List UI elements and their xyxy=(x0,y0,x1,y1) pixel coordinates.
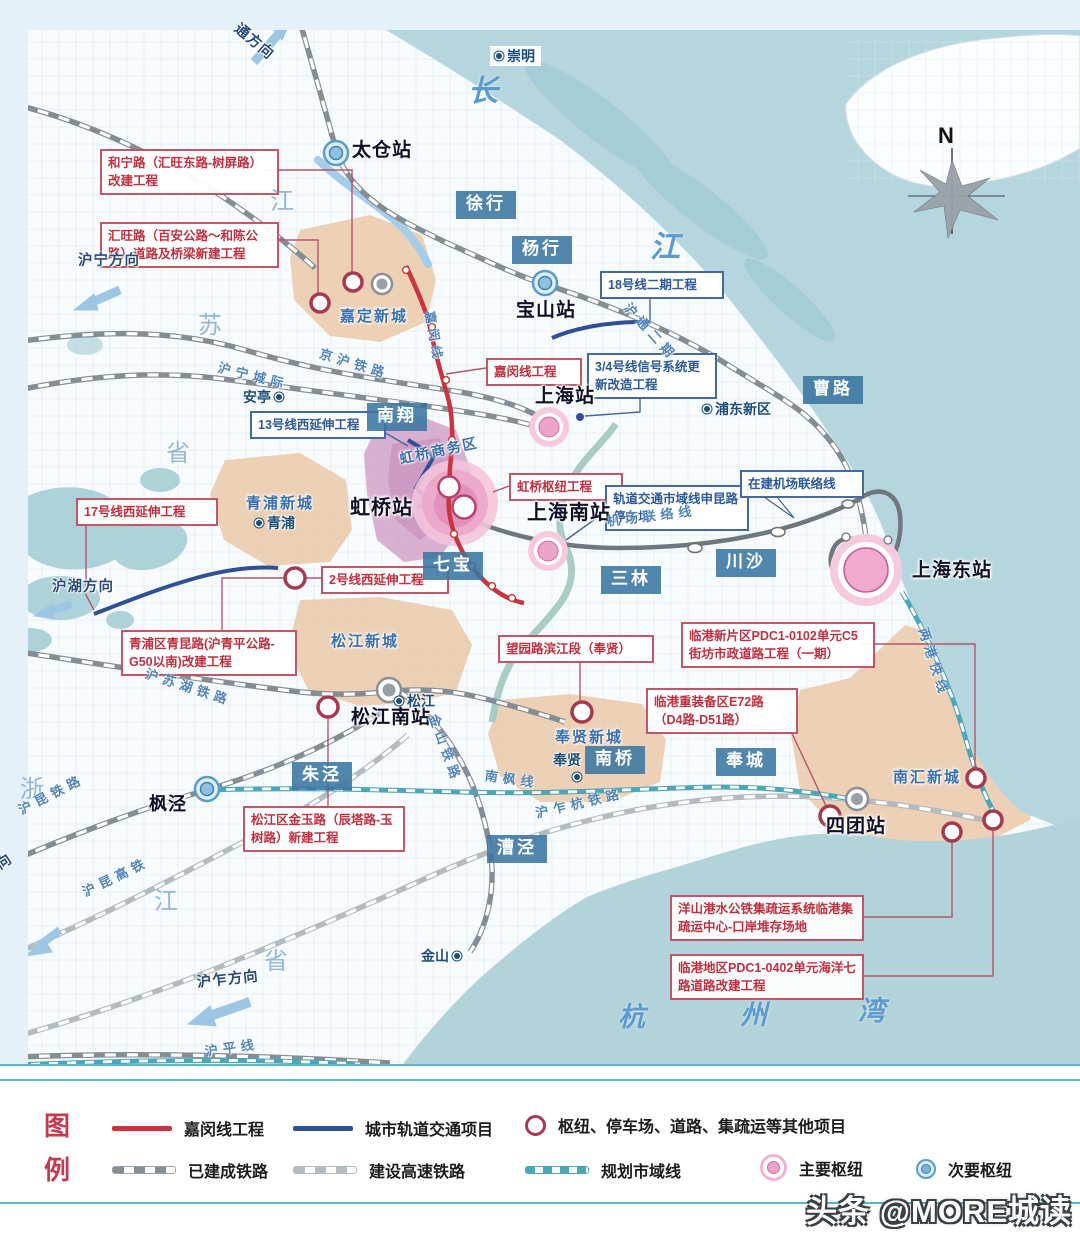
callout-jiamin-line: 嘉闵线工程 xyxy=(486,358,582,386)
legend-label: 规划市域线 xyxy=(601,1158,681,1182)
dir-hukun-label: 沪昆方向 xyxy=(0,851,15,898)
town-nanxiang: 南翔 xyxy=(367,403,427,431)
town-yanghang: 杨行 xyxy=(512,236,572,264)
poi-dot-icon xyxy=(256,520,262,526)
water-hangzhouwan-hang: 杭 xyxy=(618,1000,645,1035)
town-caolu: 曹路 xyxy=(803,376,863,404)
town-nanqiao-label: 南桥 xyxy=(595,749,635,768)
dir-huzha: 沪乍方向 xyxy=(196,968,260,993)
other-project-symbol xyxy=(525,1115,546,1136)
compass-n: N xyxy=(938,122,954,151)
town-zhujing-label: 朱泾 xyxy=(302,765,342,784)
dir-huhu: 沪湖方向 xyxy=(52,578,114,597)
rail-label-jinshan: 金山铁路 xyxy=(424,712,465,785)
watermark: 头条 @MORE城读 xyxy=(806,1186,1072,1231)
legend-label: 枢纽、停车场、道路、集疏运等其他项目 xyxy=(558,1113,846,1137)
town-xuhang-label: 徐行 xyxy=(466,194,506,213)
water-changjiang-jiang-label: 江 xyxy=(650,231,680,264)
prov-zhejiang-sheng-label: 省 xyxy=(264,948,290,975)
legend-item-major-hub: 主要枢纽 xyxy=(760,1154,863,1181)
poi-dot-icon xyxy=(396,698,402,704)
poi-dot-icon xyxy=(574,774,580,780)
callout-qingkun-road-label: 青浦区青昆路(沪青平公路-G50以南)改建工程 xyxy=(129,637,275,669)
callout-line13-west-label: 13号线西延伸工程 xyxy=(258,418,359,432)
callout-line17-west-label: 17号线西延伸工程 xyxy=(84,505,185,519)
town-chuansha-label: 川沙 xyxy=(726,552,766,571)
rail-label-hukun-hsr-label: 沪昆高铁 xyxy=(80,854,151,899)
poi-qingpu-label: 青浦 xyxy=(267,514,295,532)
legend-heading: 图 例 xyxy=(40,1104,74,1192)
rail-label-jinghu-label: 京沪铁路 xyxy=(318,346,391,381)
area-hongqiao-cbd: 虹桥商务区 xyxy=(398,433,480,467)
town-fengcheng-label: 奉城 xyxy=(726,751,766,770)
callout-pdc1-0102: 临港新片区PDC1-0102单元C5街坊市政道路工程（一期） xyxy=(681,622,875,668)
legend-item-minor-hub: 次要枢纽 xyxy=(916,1157,1012,1181)
town-caojing-label: 漕泾 xyxy=(497,838,537,857)
rail-label-huping-label: 沪平线 xyxy=(204,1036,260,1058)
water-hangzhouwan-wan-label: 湾 xyxy=(858,996,885,1026)
prov-jiangsu-sheng: 省 xyxy=(166,438,192,469)
hsr-symbol xyxy=(293,1166,357,1174)
legend-item-hsr: 建设高速铁路 xyxy=(293,1158,465,1182)
rail-label-huzhahang: 沪乍杭铁路 xyxy=(534,786,626,823)
legend-label: 已建成铁路 xyxy=(188,1158,268,1182)
poi-chongming-label: 崇明 xyxy=(507,47,535,65)
station-situan-label: 四团站 xyxy=(826,816,886,837)
station-shanghai-east-label: 上海东站 xyxy=(912,560,992,581)
legend-label: 主要枢纽 xyxy=(799,1156,863,1180)
station-taicang: 太仓站 xyxy=(352,139,412,164)
area-nanhui-newtown-label: 南汇新城 xyxy=(893,769,961,786)
callout-wangyuan-road-label: 望园路滨江段（奉贤） xyxy=(506,642,631,656)
callout-line17-west: 17号线西延伸工程 xyxy=(76,498,218,526)
rail-label-nanfeng-label: 南枫线 xyxy=(484,768,540,790)
water-hangzhouwan-zhou-label: 州 xyxy=(740,1000,767,1030)
town-chuansha: 川沙 xyxy=(716,549,776,577)
rail-label-jiamin-label: 嘉闵线 xyxy=(422,310,445,364)
area-nanhui-newtown: 南汇新城 xyxy=(893,768,961,788)
callout-jinyu-road: 松江区金玉路（辰塔路-玉树路）新建工程 xyxy=(243,806,405,852)
callout-line2-west-label: 2号线西延伸工程 xyxy=(329,573,423,587)
prov-jiangsu-su: 苏 xyxy=(198,310,224,341)
town-zhujing: 朱泾 xyxy=(292,762,352,790)
rail-label-jinghu: 京沪铁路 xyxy=(317,346,391,383)
poi-jinshan-label: 金山 xyxy=(421,947,449,965)
station-shanghai-south-label: 上海南站 xyxy=(527,502,611,524)
poi-chongming: 崇明 xyxy=(490,46,541,66)
legend-label: 次要枢纽 xyxy=(948,1157,1012,1181)
poi-pudong-new-area: 浦东新区 xyxy=(704,400,771,418)
station-baoshan-label: 宝山站 xyxy=(516,300,576,321)
callout-hongqiao-hub-label: 虹桥枢纽工程 xyxy=(517,480,592,494)
station-situan: 四团站 xyxy=(826,815,886,840)
station-taicang-label: 太仓站 xyxy=(352,140,412,161)
dir-nantong-label: 通方向 xyxy=(231,21,277,63)
water-hangzhouwan-hang-label: 杭 xyxy=(618,1002,645,1032)
water-changjiang-chang: 长 xyxy=(468,72,498,111)
map-overlays: 和宁路（汇旺东路-树屏路）改建工程汇旺路（百安公路～和陈公路）道路及桥梁新建工程… xyxy=(0,0,1080,1246)
prov-jiangsu-sheng-label: 省 xyxy=(166,440,192,467)
prov-jiangsu-jiang-label: 江 xyxy=(270,188,296,215)
callout-line18-phase2: 18号线二期工程 xyxy=(600,271,724,299)
rail-label-huping: 沪平线 xyxy=(204,1036,260,1060)
dir-nantong: 通方向 xyxy=(230,20,278,64)
station-shanghai: 上海站 xyxy=(535,385,595,410)
rail-label-lianggang-label: 两港快线 xyxy=(916,626,953,699)
callout-airport-link: 在建机场联络线 xyxy=(740,470,864,498)
station-shanghai-label: 上海站 xyxy=(535,386,595,407)
callout-line18-phase2-label: 18号线二期工程 xyxy=(608,278,697,292)
compass-n-label: N xyxy=(938,123,954,148)
rail-label-huzhahang-label: 沪乍杭铁路 xyxy=(534,786,625,821)
jiamin-line-symbol xyxy=(112,1126,172,1131)
rail-label-jiamin: 嘉闵线 xyxy=(421,310,446,365)
town-nanqiao: 南桥 xyxy=(585,746,645,774)
poi-anting-label: 安亭 xyxy=(243,388,271,406)
legend-heading-char1: 图 xyxy=(40,1104,74,1148)
callout-line34-signal: 3/4号线信号系统更新改造工程 xyxy=(587,353,717,399)
dir-huhu-label: 沪湖方向 xyxy=(52,579,114,595)
poi-fengxian-dot xyxy=(574,774,580,780)
legend-item-built-railway: 已建成铁路 xyxy=(112,1158,268,1182)
town-nanxiang-label: 南翔 xyxy=(377,406,417,425)
poi-pudong-new-area-label: 浦东新区 xyxy=(715,400,771,418)
callout-hening-road: 和宁路（汇旺东路-树屏路）改建工程 xyxy=(100,149,279,195)
poi-fengxian-label: 奉贤 xyxy=(553,751,581,769)
water-hangzhouwan-wan: 湾 xyxy=(858,994,885,1029)
station-shanghai-south: 上海南站 xyxy=(527,500,611,526)
poi-dot-icon xyxy=(276,394,282,400)
legend-item-planned-line: 规划市域线 xyxy=(525,1158,681,1182)
dir-hukun: 沪昆方向 xyxy=(0,850,16,900)
poi-dot-icon xyxy=(454,953,460,959)
station-fengjing-label: 枫泾 xyxy=(149,794,187,814)
built-railway-symbol xyxy=(112,1166,176,1174)
water-hangzhouwan-zhou: 州 xyxy=(740,998,767,1033)
station-hongqiao-label: 虹桥站 xyxy=(350,497,413,519)
town-qibao-label: 七宝 xyxy=(433,555,473,574)
area-qingpu-newtown-label: 青浦新城 xyxy=(246,495,314,512)
minor-hub-symbol xyxy=(916,1159,936,1179)
town-yanghang-label: 杨行 xyxy=(522,239,562,258)
rail-label-hukun-hsr: 沪昆高铁 xyxy=(80,854,152,901)
area-songjiang-newtown: 松江新城 xyxy=(331,632,399,652)
area-jiading-newtown-label: 嘉定新城 xyxy=(340,308,408,325)
town-caojing: 漕泾 xyxy=(487,835,547,863)
callout-yangshan: 洋山港水公铁集疏运系统临港集疏运中心-口岸堆存场地 xyxy=(670,895,864,941)
station-fengjing: 枫泾 xyxy=(149,793,187,816)
town-caolu-label: 曹路 xyxy=(813,379,853,398)
poi-songjiang-label: 松江 xyxy=(407,692,435,710)
callout-hening-road-label: 和宁路（汇旺东路-树屏路）改建工程 xyxy=(108,156,262,188)
prov-jiangsu-su-label: 苏 xyxy=(198,312,224,339)
page: 和宁路（汇旺东路-树屏路）改建工程汇旺路（百安公路～和陈公路）道路及桥梁新建工程… xyxy=(0,0,1080,1246)
separator-line-2 xyxy=(0,1079,1080,1081)
town-fengcheng: 奉城 xyxy=(716,748,776,776)
station-shanghai-east: 上海东站 xyxy=(912,559,992,584)
area-songjiang-newtown-label: 松江新城 xyxy=(331,633,399,650)
town-sanlin: 三林 xyxy=(601,566,661,594)
legend-label: 嘉闵线工程 xyxy=(184,1116,264,1140)
callout-airport-link-label: 在建机场联络线 xyxy=(748,477,836,491)
callout-line13-west: 13号线西延伸工程 xyxy=(250,411,386,439)
legend-label: 城市轨道交通项目 xyxy=(365,1116,493,1140)
dir-huzha-label: 沪乍方向 xyxy=(196,969,259,991)
callout-e72-road: 临港重装备区E72路（D4路-D51路） xyxy=(646,688,798,734)
rail-label-jinshan-label: 金山铁路 xyxy=(426,712,465,785)
prov-zhejiang-jiang: 江 xyxy=(154,886,180,917)
area-fengxian-newtown-label: 奉贤新城 xyxy=(555,729,623,746)
planned-line-symbol xyxy=(525,1166,589,1174)
rail-label-lianggang: 两港快线 xyxy=(914,626,952,700)
poi-dot-icon xyxy=(496,53,502,59)
callout-pdc1-0402-label: 临港地区PDC1-0402单元海洋七路道路改建工程 xyxy=(678,961,856,993)
poi-dot-icon xyxy=(704,406,710,412)
poi-qingpu: 青浦 xyxy=(256,514,295,532)
legend-item-jiamin-line: 嘉闵线工程 xyxy=(112,1116,264,1140)
callout-e72-road-label: 临港重装备区E72路（D4路-D51路） xyxy=(654,695,764,727)
prov-jiangsu-jiang: 江 xyxy=(270,186,296,217)
callout-line34-signal-label: 3/4号线信号系统更新改造工程 xyxy=(595,360,700,392)
urban-rail-symbol xyxy=(293,1126,353,1131)
callout-pdc1-0102-label: 临港新片区PDC1-0102单元C5街坊市政道路工程（一期） xyxy=(689,629,858,661)
legend-heading-char2: 例 xyxy=(40,1148,74,1192)
water-changjiang-chang-label: 长 xyxy=(468,75,498,108)
town-sanlin-label: 三林 xyxy=(611,569,651,588)
legend-item-other-projects: 枢纽、停车场、道路、集疏运等其他项目 xyxy=(525,1113,846,1137)
prov-zhejiang-sheng: 省 xyxy=(264,946,290,977)
dir-huning: 沪宁方向 xyxy=(78,252,140,271)
callout-pdc1-0402: 临港地区PDC1-0402单元海洋七路道路改建工程 xyxy=(670,954,864,1000)
dir-huning-label: 沪宁方向 xyxy=(78,253,140,269)
area-jiading-newtown: 嘉定新城 xyxy=(340,307,408,327)
callout-yangshan-label: 洋山港水公铁集疏运系统临港集疏运中心-口岸堆存场地 xyxy=(678,902,853,934)
poi-jinshan: 金山 xyxy=(421,947,460,965)
prov-zhejiang-jiang-label: 江 xyxy=(154,888,180,915)
station-hongqiao: 虹桥站 xyxy=(350,495,413,521)
station-baoshan: 宝山站 xyxy=(516,299,576,324)
water-changjiang-jiang: 江 xyxy=(650,228,680,267)
town-xuhang: 徐行 xyxy=(456,191,516,219)
callout-jinyu-road-label: 松江区金玉路（辰塔路-玉树路）新建工程 xyxy=(251,813,393,845)
poi-songjiang: 松江 xyxy=(396,692,435,710)
callout-jiamin-line-label: 嘉闵线工程 xyxy=(494,365,557,379)
town-qibao: 七宝 xyxy=(423,552,483,580)
legend-item-urban-rail: 城市轨道交通项目 xyxy=(293,1116,493,1140)
area-fengxian-newtown: 奉贤新城 xyxy=(555,728,623,748)
area-hongqiao-cbd-label: 虹桥商务区 xyxy=(398,434,480,466)
major-hub-symbol xyxy=(760,1154,787,1181)
rail-label-nanfeng: 南枫线 xyxy=(484,768,540,792)
legend-label: 建设高速铁路 xyxy=(369,1158,465,1182)
poi-fengxian: 奉贤 xyxy=(553,751,581,769)
separator-line-1 xyxy=(0,1064,1080,1066)
area-qingpu-newtown: 青浦新城 xyxy=(246,494,314,514)
callout-wangyuan-road: 望园路滨江段（奉贤） xyxy=(498,635,654,663)
